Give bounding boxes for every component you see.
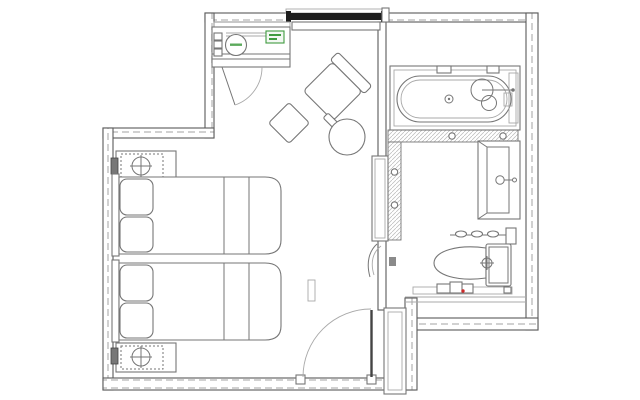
partition-connector-icon xyxy=(449,133,455,139)
cup-icon xyxy=(214,49,222,56)
headboard xyxy=(112,260,119,342)
towel-ring-icon xyxy=(488,231,499,237)
minibar-label-text-mark xyxy=(269,38,277,40)
shelf-item-small xyxy=(504,287,511,293)
switch-box-icon xyxy=(111,158,118,174)
lounge-armchair xyxy=(298,52,375,129)
cabinet-back-edge xyxy=(214,22,290,27)
minibar-label-text-mark xyxy=(269,34,281,36)
drain-dot xyxy=(448,98,450,100)
sliding-door-panel xyxy=(372,156,388,241)
towel-ring-icon xyxy=(456,231,467,237)
pillow xyxy=(120,265,153,301)
floor-plan-drawing xyxy=(0,0,640,400)
side-table-top xyxy=(268,102,309,143)
window-glazing-bar xyxy=(288,13,384,20)
deck-niche xyxy=(487,66,499,73)
bathtub xyxy=(390,66,520,130)
door-stop xyxy=(296,375,305,384)
kettle-label-mark xyxy=(230,44,242,46)
toilet-bowl xyxy=(434,247,486,279)
closet-outline xyxy=(384,308,406,394)
wall-top-left xyxy=(205,13,290,22)
vanity-counter xyxy=(478,141,520,219)
deck-niche xyxy=(437,66,451,73)
window-head-line xyxy=(286,9,386,13)
side-table xyxy=(268,102,309,143)
wall-entry-return xyxy=(405,298,417,390)
door-knob-icon xyxy=(389,257,396,266)
vanity-sink xyxy=(478,141,520,219)
minibar-cabinet xyxy=(212,22,290,105)
headboard xyxy=(112,174,119,256)
nightstand-bottom xyxy=(111,343,176,372)
entry-area xyxy=(296,280,406,394)
round-table xyxy=(329,119,365,155)
towel-rail xyxy=(450,228,516,244)
red-indicator-dot xyxy=(461,289,464,292)
bathroom xyxy=(368,66,526,302)
cup-icon xyxy=(214,33,222,40)
wall-top-right xyxy=(382,13,538,22)
sleeping-area xyxy=(111,151,281,372)
cabinet-door-swing-arc xyxy=(235,67,262,105)
wall-step xyxy=(103,128,214,138)
entry-door-swing-arc xyxy=(303,309,371,377)
rail-bracket xyxy=(506,228,516,244)
partition-connector-icon xyxy=(391,169,397,175)
bed-2 xyxy=(112,260,281,342)
bed-1 xyxy=(112,174,281,256)
cup-icon xyxy=(214,41,222,48)
pillow xyxy=(120,303,153,338)
wall-bottom-right xyxy=(413,318,538,330)
tub-rim xyxy=(397,76,511,122)
spout-tip xyxy=(511,88,515,92)
tiled-partition-vertical xyxy=(388,142,401,240)
partition-connector-icon xyxy=(500,133,506,139)
window-sill xyxy=(292,22,380,30)
window xyxy=(286,8,389,30)
entry-threshold xyxy=(308,280,315,301)
pillow xyxy=(120,179,153,215)
toilet-tank xyxy=(486,244,511,286)
window-jamb xyxy=(382,8,389,22)
wall-right xyxy=(526,13,538,330)
cabinet-door-leaf xyxy=(222,67,235,105)
pillow xyxy=(120,217,153,252)
shelf-item xyxy=(450,282,462,293)
partition-connector-icon xyxy=(391,202,397,208)
window-end-cap-left-icon xyxy=(286,11,291,22)
minibar-label xyxy=(266,31,284,43)
switch-box-icon xyxy=(111,348,118,364)
toilet xyxy=(434,244,511,286)
floor-plan-canvas xyxy=(0,0,640,400)
closet xyxy=(384,308,406,394)
towel-ring-icon xyxy=(472,231,483,237)
